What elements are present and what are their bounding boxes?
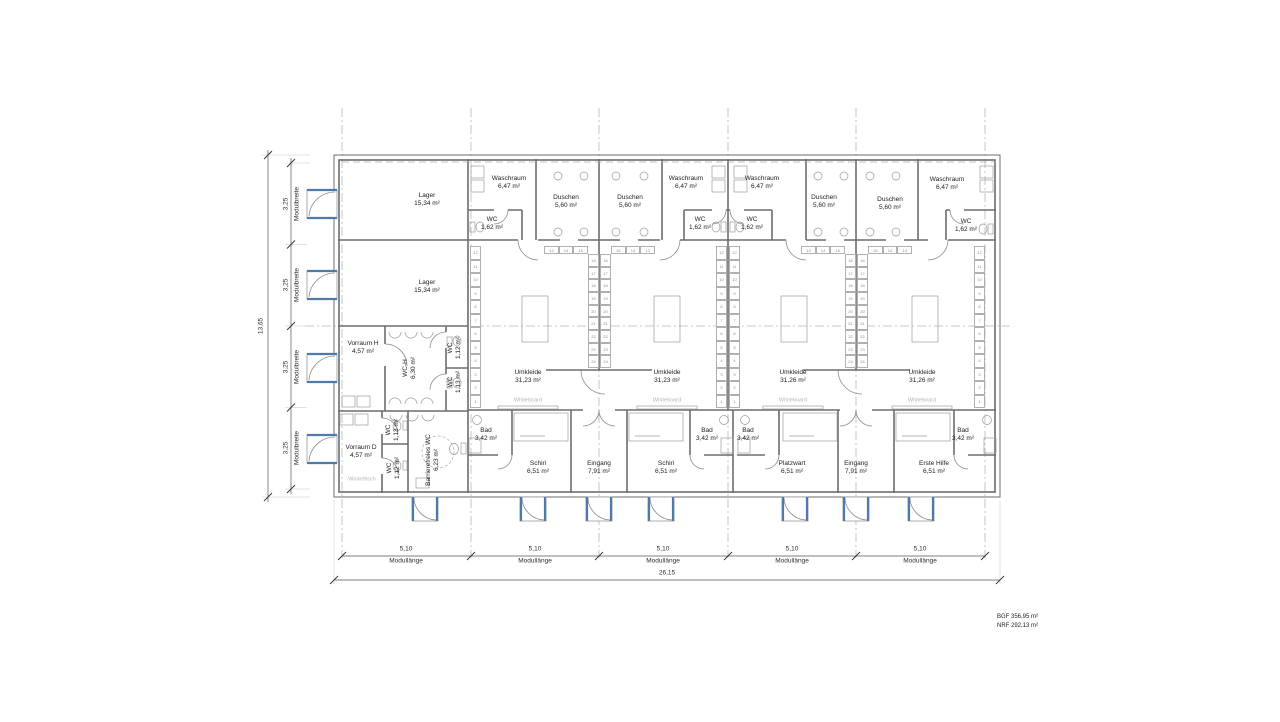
- room-label-wc-3: WC1,62 m²: [741, 216, 763, 232]
- room-label-duschen-2: Duschen5,60 m²: [617, 194, 643, 210]
- locker-strip-center-u2: 161718192021222324: [600, 254, 611, 368]
- room-label-wc-4: WC1,62 m²: [955, 218, 977, 234]
- dim-module-width-5-value: 5,10: [914, 546, 927, 553]
- room-label-bad-1: Bad3,42 m²: [475, 427, 497, 443]
- exterior-doors-bottom: [412, 497, 934, 521]
- locker-header-u4: 151413: [868, 246, 912, 254]
- room-label-umkleide-1: Umkleide31,23 m²: [514, 369, 541, 385]
- room-label-schiri-1: Schiri6,51 m²: [527, 460, 549, 476]
- door-bottom-eingang-1: [586, 497, 612, 521]
- room-label-barrierefreies-wc: Barrierefreies WC6,23 m²: [425, 434, 441, 486]
- room-label-waschraum-3: Waschraum6,47 m²: [745, 175, 779, 191]
- locker-header-u1: 131415: [544, 246, 588, 254]
- door-bottom-schiri-1: [520, 497, 546, 521]
- room-label-waschraum-2: Waschraum6,47 m²: [669, 175, 703, 191]
- dim-module-height-1-label: Modulbreite: [294, 187, 301, 221]
- dim-module-width-2-value: 5,10: [529, 546, 542, 553]
- room-label-waschraum-4: Waschraum6,47 m²: [930, 176, 964, 192]
- shower-symbols: [554, 172, 900, 236]
- annotation-wickeltisch: Wickeltisch: [348, 477, 376, 484]
- room-label-wc-113-a: WC1,13 m²: [447, 371, 463, 393]
- room-label-erste-hilfe: Erste Hilfe6,51 m²: [919, 460, 949, 476]
- dimension-lines: [264, 150, 1004, 584]
- dim-module-width-1-value: 5,10: [400, 546, 413, 553]
- locker-strip-center-u3: 161718192021222324: [845, 254, 856, 368]
- dim-module-width-3-value: 5,10: [657, 546, 670, 553]
- dim-module-width-5-label: Modullänge: [903, 558, 937, 565]
- annotation-whiteboard-2: Whiteboard: [653, 398, 681, 405]
- floor-plan-canvas: 121110987654321 121110987654321 12111098…: [0, 0, 1280, 722]
- room-label-wc-h: WC-H6,30 m²: [402, 357, 418, 379]
- room-label-vorraum-h: Vorraum H4,57 m²: [347, 340, 378, 356]
- dim-module-width-3-label: Modullänge: [646, 558, 680, 565]
- dim-total-width: 26,15: [659, 570, 675, 577]
- locker-header-u3: 131415: [801, 246, 845, 254]
- room-label-vorraum-d: Vorraum D4,57 m²: [345, 444, 376, 460]
- room-label-duschen-3: Duschen5,60 m²: [811, 194, 837, 210]
- annotation-whiteboard-1: Whiteboard: [514, 398, 542, 405]
- room-label-bad-3: Bad3,42 m²: [737, 427, 759, 443]
- door-bottom-barrierefrei: [412, 497, 438, 521]
- grid-lines: [305, 108, 1010, 558]
- area-summary: BGF 356,95 m² NRF 292,13 m²: [997, 613, 1038, 631]
- room-label-eingang-2: Eingang7,91 m²: [844, 460, 868, 476]
- dim-module-width-1-label: Modullänge: [389, 558, 423, 565]
- locker-header-u2: 151413: [611, 246, 655, 254]
- locker-strip-side-u1: 121110987654321: [470, 246, 481, 408]
- door-left-2: [307, 271, 337, 299]
- furniture-symbols: [514, 413, 950, 441]
- room-label-duschen-1: Duschen5,60 m²: [553, 194, 579, 210]
- locker-strip-center-u4: 161718192021222324: [857, 254, 868, 368]
- exterior-doors-left: [307, 190, 337, 463]
- room-label-wc-2: WC1,62 m²: [689, 216, 711, 232]
- room-label-umkleide-3: Umkleide31,26 m²: [779, 369, 806, 385]
- door-left-4: [307, 435, 337, 463]
- dim-module-height-2-label: Modulbreite: [294, 268, 301, 302]
- dim-module-width-4-value: 5,10: [786, 546, 799, 553]
- dim-module-height-2-value: 3,25: [283, 279, 290, 292]
- annotation-whiteboard-4: Whiteboard: [908, 398, 936, 405]
- room-label-lager-2: Lager15,34 m²: [414, 279, 440, 295]
- room-label-bad-4: Bad3,42 m²: [952, 427, 974, 443]
- locker-strip-side-u4: 121110987654321: [974, 246, 985, 408]
- area-summary-bgf: BGF 356,95 m²: [997, 613, 1038, 622]
- dim-module-height-3-value: 3,25: [283, 361, 290, 374]
- room-label-wc-113-b: WC1,13 m²: [385, 419, 401, 441]
- room-label-bad-2: Bad3,42 m²: [696, 427, 718, 443]
- area-summary-nrf: NRF 292,13 m²: [997, 622, 1038, 631]
- door-left-1: [307, 190, 337, 218]
- dim-module-width-2-label: Modullänge: [518, 558, 552, 565]
- floor-plan-drawing: [0, 0, 1280, 722]
- locker-strip-side-u3: 121110987654321: [729, 246, 740, 408]
- door-bottom-schiri-2: [648, 497, 674, 521]
- dim-module-height-4-value: 3,25: [283, 442, 290, 455]
- door-bottom-erste-hilfe: [908, 497, 934, 521]
- locker-strip-center-u1: 161718192021222324: [588, 254, 599, 368]
- room-label-umkleide-4: Umkleide31,26 m²: [908, 369, 935, 385]
- dim-module-width-4-label: Modullänge: [775, 558, 809, 565]
- room-label-wc-112-b: WC1,12 m²: [386, 457, 402, 479]
- room-label-umkleide-2: Umkleide31,23 m²: [653, 369, 680, 385]
- dim-module-height-4-label: Modulbreite: [294, 431, 301, 465]
- room-label-lager-1: Lager15,34 m²: [414, 192, 440, 208]
- annotation-whiteboard-3: Whiteboard: [779, 398, 807, 405]
- dim-total-height: 13,65: [258, 318, 265, 334]
- door-left-3: [307, 354, 337, 382]
- dim-module-height-1-value: 3,25: [283, 198, 290, 211]
- door-bottom-platzwart: [782, 497, 808, 521]
- locker-strip-side-u2: 121110987654321: [716, 246, 727, 408]
- dim-module-height-3-label: Modulbreite: [294, 350, 301, 384]
- room-label-eingang-1: Eingang7,91 m²: [587, 460, 611, 476]
- room-label-waschraum-1: Waschraum6,47 m²: [492, 175, 526, 191]
- room-label-platzwart: Platzwart6,51 m²: [779, 460, 806, 476]
- room-label-wc-1: WC1,62 m²: [481, 216, 503, 232]
- room-label-schiri-2: Schiri6,51 m²: [655, 460, 677, 476]
- door-bottom-eingang-2: [843, 497, 869, 521]
- room-label-wc-112-a: WC1,12 m²: [447, 337, 463, 359]
- room-label-duschen-4: Duschen5,60 m²: [877, 196, 903, 212]
